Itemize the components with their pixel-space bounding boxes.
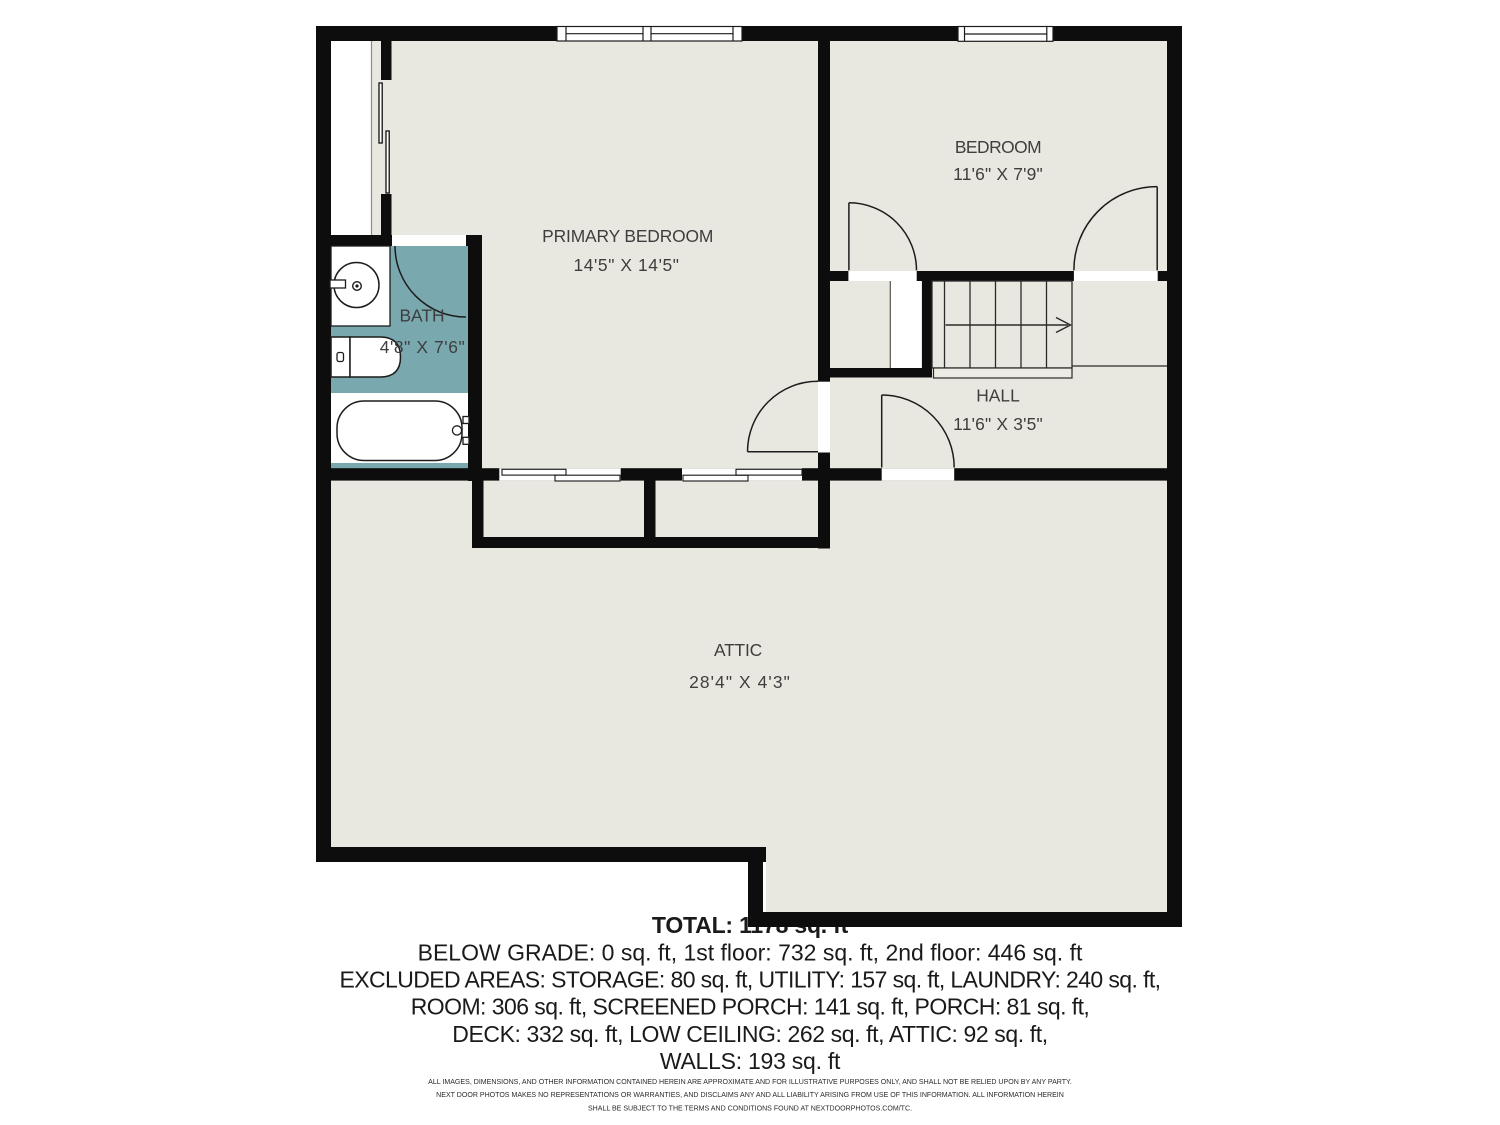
svg-text:ALL IMAGES, DIMENSIONS, AND OT: ALL IMAGES, DIMENSIONS, AND OTHER INFORM… [428, 1079, 1072, 1086]
svg-text:11'6" X 7'9": 11'6" X 7'9" [953, 164, 1043, 184]
svg-text:28'4" X 4'3": 28'4" X 4'3" [689, 672, 791, 692]
svg-text:ROOM: 306 sq. ft, SCREENED POR: ROOM: 306 sq. ft, SCREENED PORCH: 141 sq… [411, 994, 1090, 1020]
svg-text:PRIMARY BEDROOM: PRIMARY BEDROOM [542, 226, 713, 246]
svg-text:11'6" X 3'5": 11'6" X 3'5" [953, 414, 1043, 434]
svg-text:BATH: BATH [399, 306, 444, 326]
svg-text:WALLS: 193 sq. ft: WALLS: 193 sq. ft [660, 1048, 841, 1074]
svg-text:NEXT DOOR PHOTOS MAKES NO REPR: NEXT DOOR PHOTOS MAKES NO REPRESENTATION… [436, 1092, 1064, 1099]
svg-text:BEDROOM: BEDROOM [955, 137, 1041, 157]
svg-text:HALL: HALL [976, 386, 1020, 406]
svg-text:SHALL BE SUBJECT TO THE TERMS: SHALL BE SUBJECT TO THE TERMS AND CONDIT… [588, 1105, 912, 1112]
svg-text:BELOW GRADE: 0 sq. ft, 1st flo: BELOW GRADE: 0 sq. ft, 1st floor: 732 sq… [418, 940, 1083, 966]
svg-text:EXCLUDED AREAS: STORAGE: 80 sq: EXCLUDED AREAS: STORAGE: 80 sq. ft, UTIL… [340, 967, 1161, 993]
svg-text:ATTIC: ATTIC [714, 640, 762, 660]
svg-text:4'8" X 7'6": 4'8" X 7'6" [380, 337, 466, 357]
svg-text:14'5" X 14'5": 14'5" X 14'5" [573, 255, 679, 275]
svg-text:DECK: 332 sq. ft, LOW CEILING:: DECK: 332 sq. ft, LOW CEILING: 262 sq. f… [452, 1021, 1048, 1047]
